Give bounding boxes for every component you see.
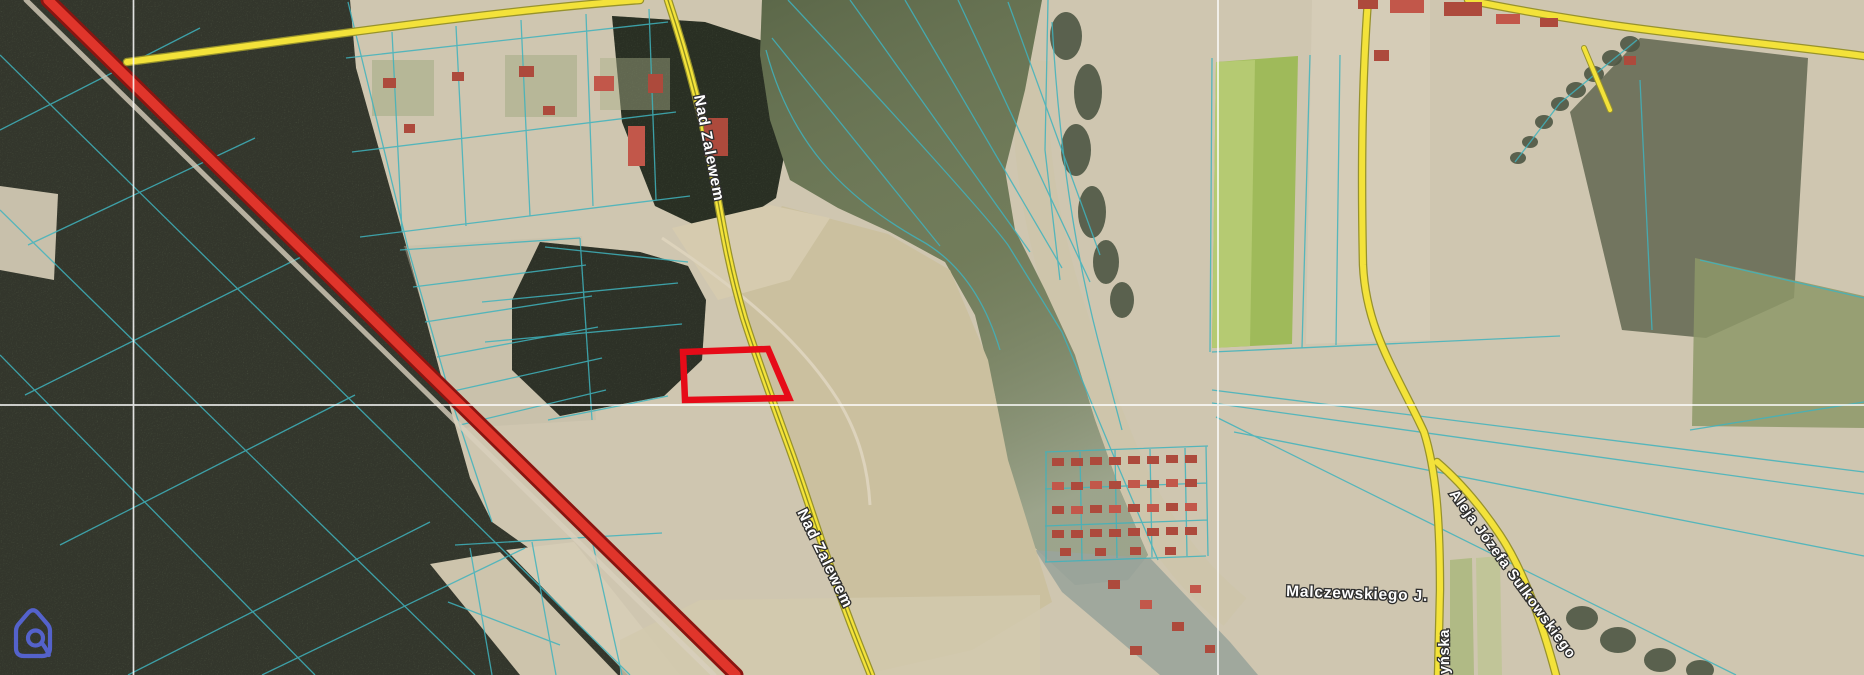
house-roof bbox=[1624, 56, 1636, 65]
map-canvas[interactable]: Nad Zalewem Nad Zalewem Malczewskiego J.… bbox=[0, 0, 1864, 675]
field-green-sliver2 bbox=[1476, 556, 1502, 675]
street-label-partial-ynska: yńska bbox=[1437, 629, 1453, 674]
terrain-layer bbox=[0, 0, 1864, 675]
house-roof bbox=[1496, 14, 1520, 24]
house-roof bbox=[1540, 18, 1558, 27]
house-roof bbox=[543, 106, 555, 115]
house-roof bbox=[519, 66, 534, 77]
map-svg[interactable]: Nad Zalewem Nad Zalewem Malczewskiego J.… bbox=[0, 0, 1864, 675]
house-roof bbox=[594, 76, 614, 91]
house-roof bbox=[628, 126, 645, 166]
house-roof bbox=[1390, 0, 1424, 13]
lawn bbox=[372, 60, 434, 116]
lawn bbox=[505, 55, 577, 117]
house-roof bbox=[1358, 0, 1378, 9]
house-roof bbox=[648, 74, 663, 93]
house-roof bbox=[404, 124, 415, 133]
house-roof bbox=[383, 78, 396, 88]
house-roof bbox=[1444, 2, 1482, 16]
house-roof bbox=[1374, 50, 1389, 61]
field-green-sliver1 bbox=[1450, 558, 1474, 675]
clearing-left bbox=[0, 186, 58, 280]
house-roof bbox=[452, 72, 464, 81]
